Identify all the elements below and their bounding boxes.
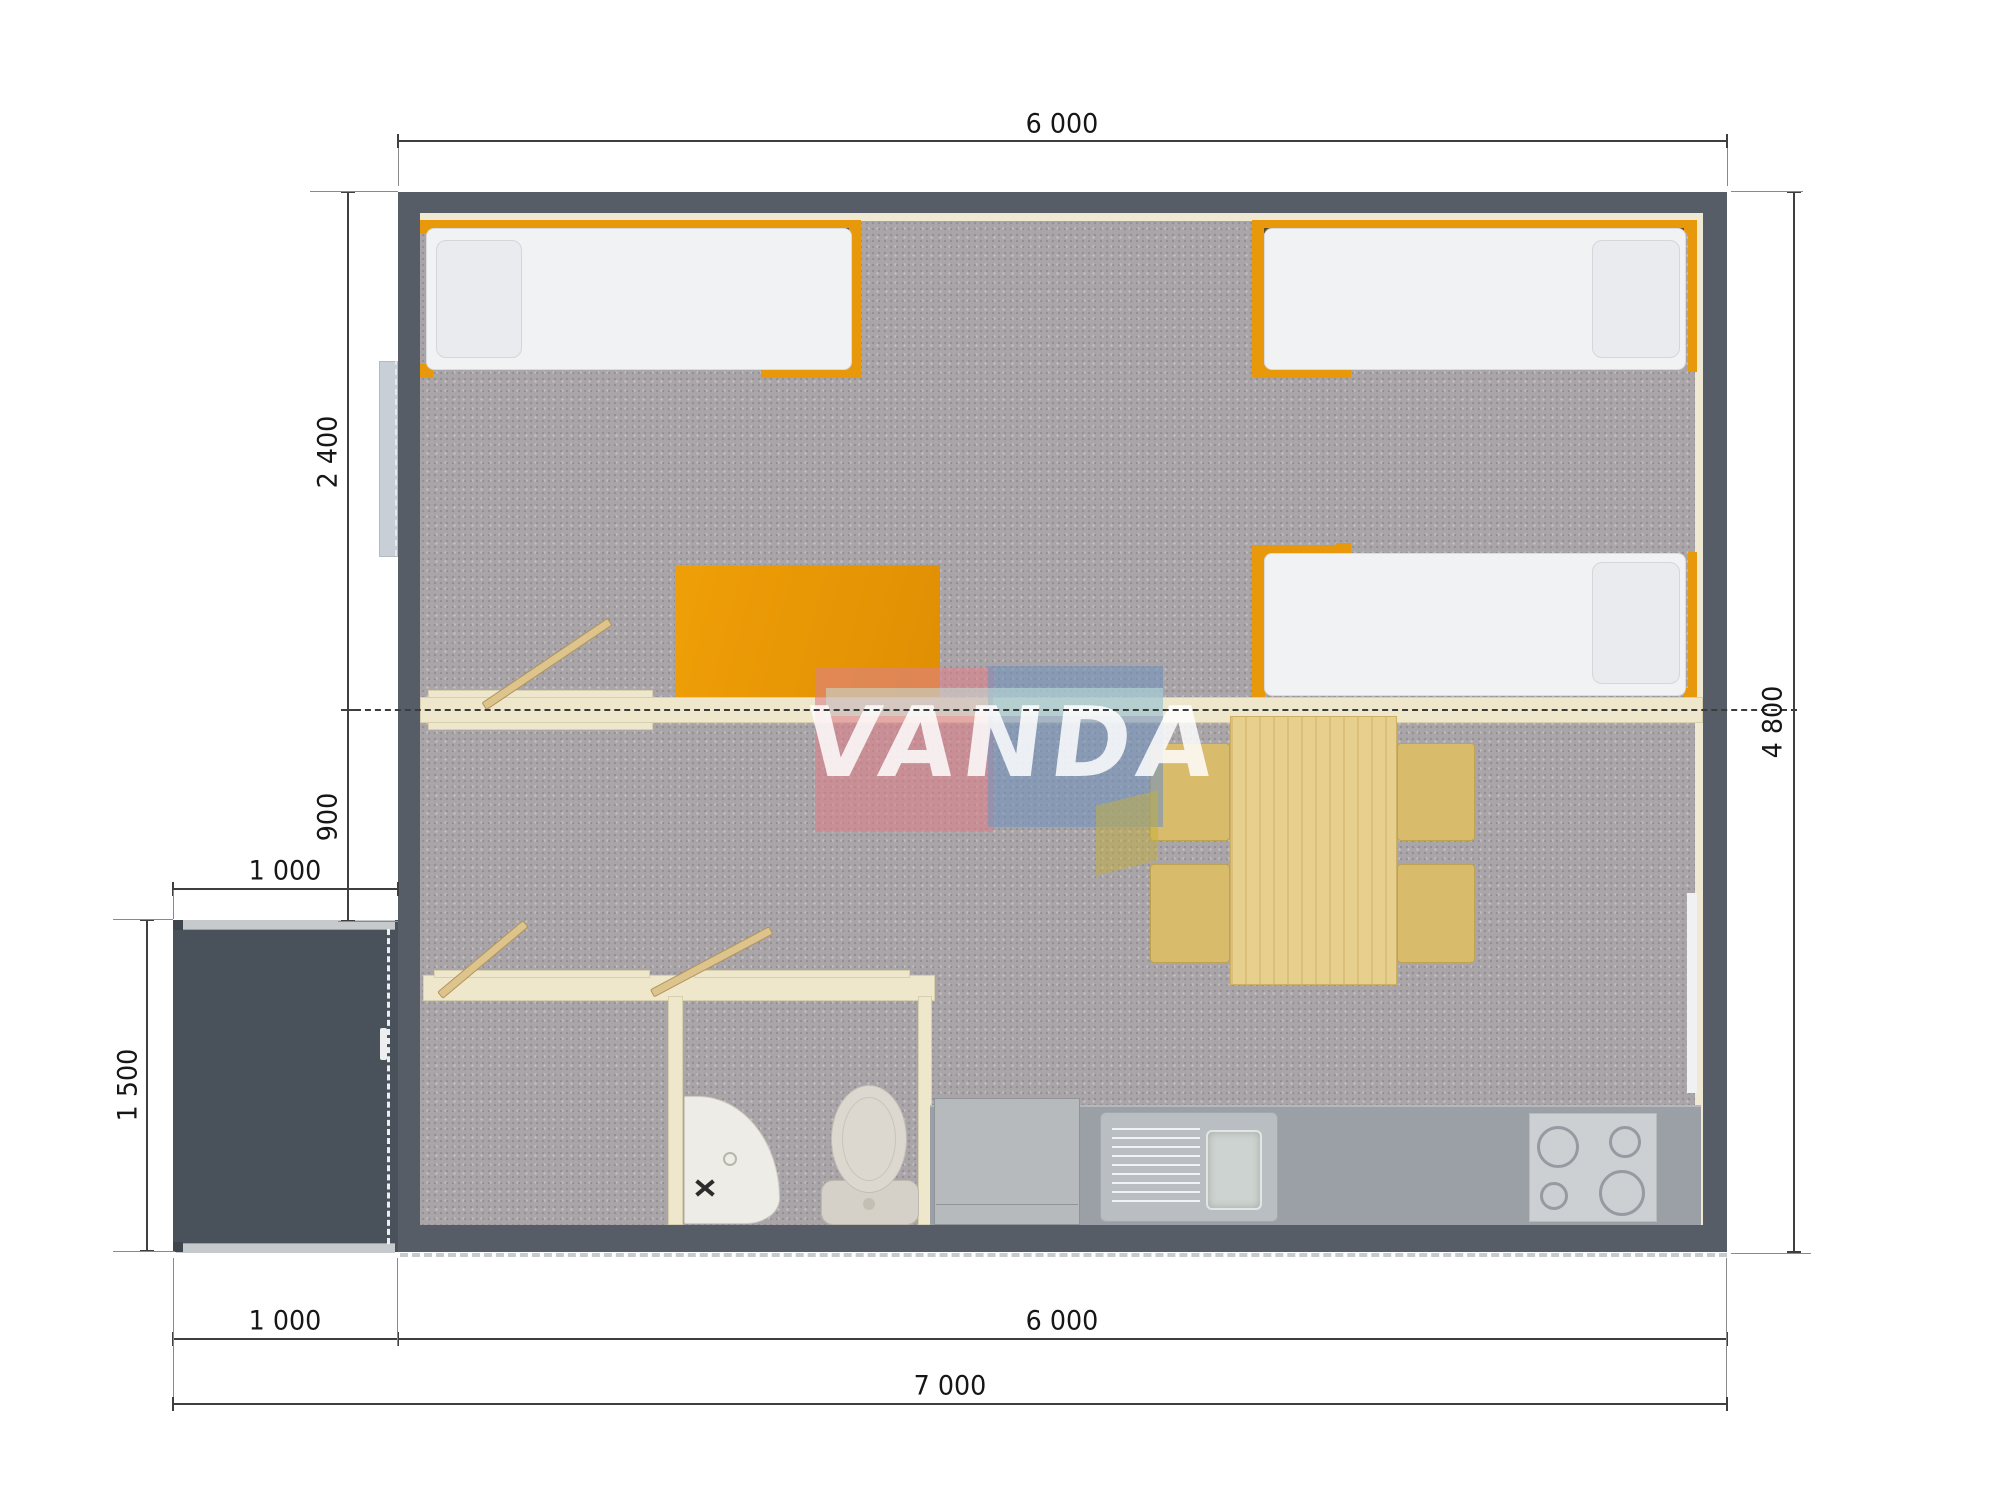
dim-line-right	[1793, 192, 1795, 1252]
chair-left-bottom	[1150, 864, 1230, 963]
dim-label-bottom-porch: 1 000	[249, 1306, 322, 1337]
stove-burner-br	[1599, 1170, 1645, 1216]
dim-label-right-height: 4 800	[1758, 686, 1789, 759]
bed1-frame-rail-top	[420, 220, 861, 228]
stove-burner-tr	[1609, 1126, 1641, 1158]
dining-table	[1230, 716, 1397, 985]
bathroom-wall-jamb-right	[694, 970, 910, 978]
dim-line-bottom-1	[173, 1338, 1727, 1340]
corner-sink-drain	[723, 1152, 737, 1166]
dim-line-porch-width	[173, 888, 398, 890]
tick	[341, 709, 355, 711]
dim-line-top	[398, 140, 1727, 142]
dim-label-porch-depth: 1 500	[113, 1049, 144, 1122]
fridge-unit	[934, 1098, 1080, 1225]
dim-line-bottom-2	[173, 1403, 1727, 1405]
porch-post-top	[173, 920, 183, 930]
bed3-pillow	[1592, 562, 1680, 684]
bed3-rail-right	[1688, 552, 1697, 697]
bed2-post-tr	[1684, 220, 1697, 233]
toilet-lid-line	[842, 1097, 896, 1181]
ext-line	[113, 919, 173, 920]
fridge-unit-divider	[936, 1204, 1078, 1205]
tick	[1726, 1397, 1728, 1411]
ext-line	[338, 921, 398, 922]
watermark-text: VANDA	[798, 686, 1184, 799]
stove-burner-bl	[1540, 1182, 1568, 1210]
dim-line-porch-depth	[146, 920, 148, 1251]
bed2-frame-rail-top	[1252, 220, 1697, 228]
tick	[397, 882, 399, 896]
floor-plan: VANDA 6 000 4 800 2 400 900 1 000 1 500 …	[0, 0, 2000, 1502]
sink-basin	[1206, 1130, 1262, 1210]
bed1-pillow	[436, 240, 522, 358]
ext-line	[1727, 148, 1728, 186]
ext-line	[1731, 191, 1803, 192]
dim-label-bottom-house: 6 000	[1026, 1306, 1099, 1337]
bottom-wall-dash-edge	[400, 1253, 1727, 1257]
bed2-frame-headrail	[1252, 220, 1264, 377]
porch-step-bottom	[176, 1243, 395, 1253]
left-wall-dash-edge	[395, 228, 397, 918]
chair-right-top	[1397, 743, 1475, 841]
right-wall-window	[1687, 893, 1697, 1093]
tick	[397, 134, 399, 148]
interior-wall-lip-top	[428, 690, 653, 698]
dim-label-left-lower: 900	[313, 793, 344, 841]
dim-line-left-lower	[347, 711, 349, 922]
ext-line	[113, 1251, 175, 1252]
dim-label-top-width: 6 000	[1026, 109, 1099, 140]
chair-right-bottom	[1397, 864, 1475, 963]
bed3-frame-headrail	[1252, 545, 1264, 700]
tick	[172, 1397, 174, 1411]
bathroom-wall-divider	[668, 996, 683, 1225]
dim-label-bottom-total: 7 000	[914, 1371, 987, 1402]
wall-axis-dashed-line	[345, 709, 1797, 711]
entry-door-handle	[380, 1028, 387, 1060]
porch-deck	[173, 920, 398, 1252]
ext-line	[173, 1258, 174, 1408]
bed2-pillow	[1592, 240, 1680, 358]
dim-label-left-upper: 2 400	[313, 416, 344, 489]
dim-label-porch-width: 1 000	[249, 856, 322, 887]
bed2-rail-right	[1688, 222, 1697, 372]
ext-line	[397, 1258, 398, 1346]
tick	[1726, 134, 1728, 148]
ext-line	[1731, 1253, 1811, 1254]
dim-line-left-upper	[347, 192, 349, 711]
entry-sliding-door	[387, 929, 390, 1244]
interior-wall-lip-bottom	[428, 722, 653, 730]
ext-line	[398, 148, 399, 186]
stove-burner-tl	[1537, 1126, 1579, 1168]
ext-line	[173, 890, 174, 919]
toilet-flush-button	[863, 1198, 875, 1210]
ext-line	[1726, 1258, 1727, 1408]
sink-drainboard	[1112, 1128, 1200, 1208]
ext-line	[310, 191, 398, 192]
